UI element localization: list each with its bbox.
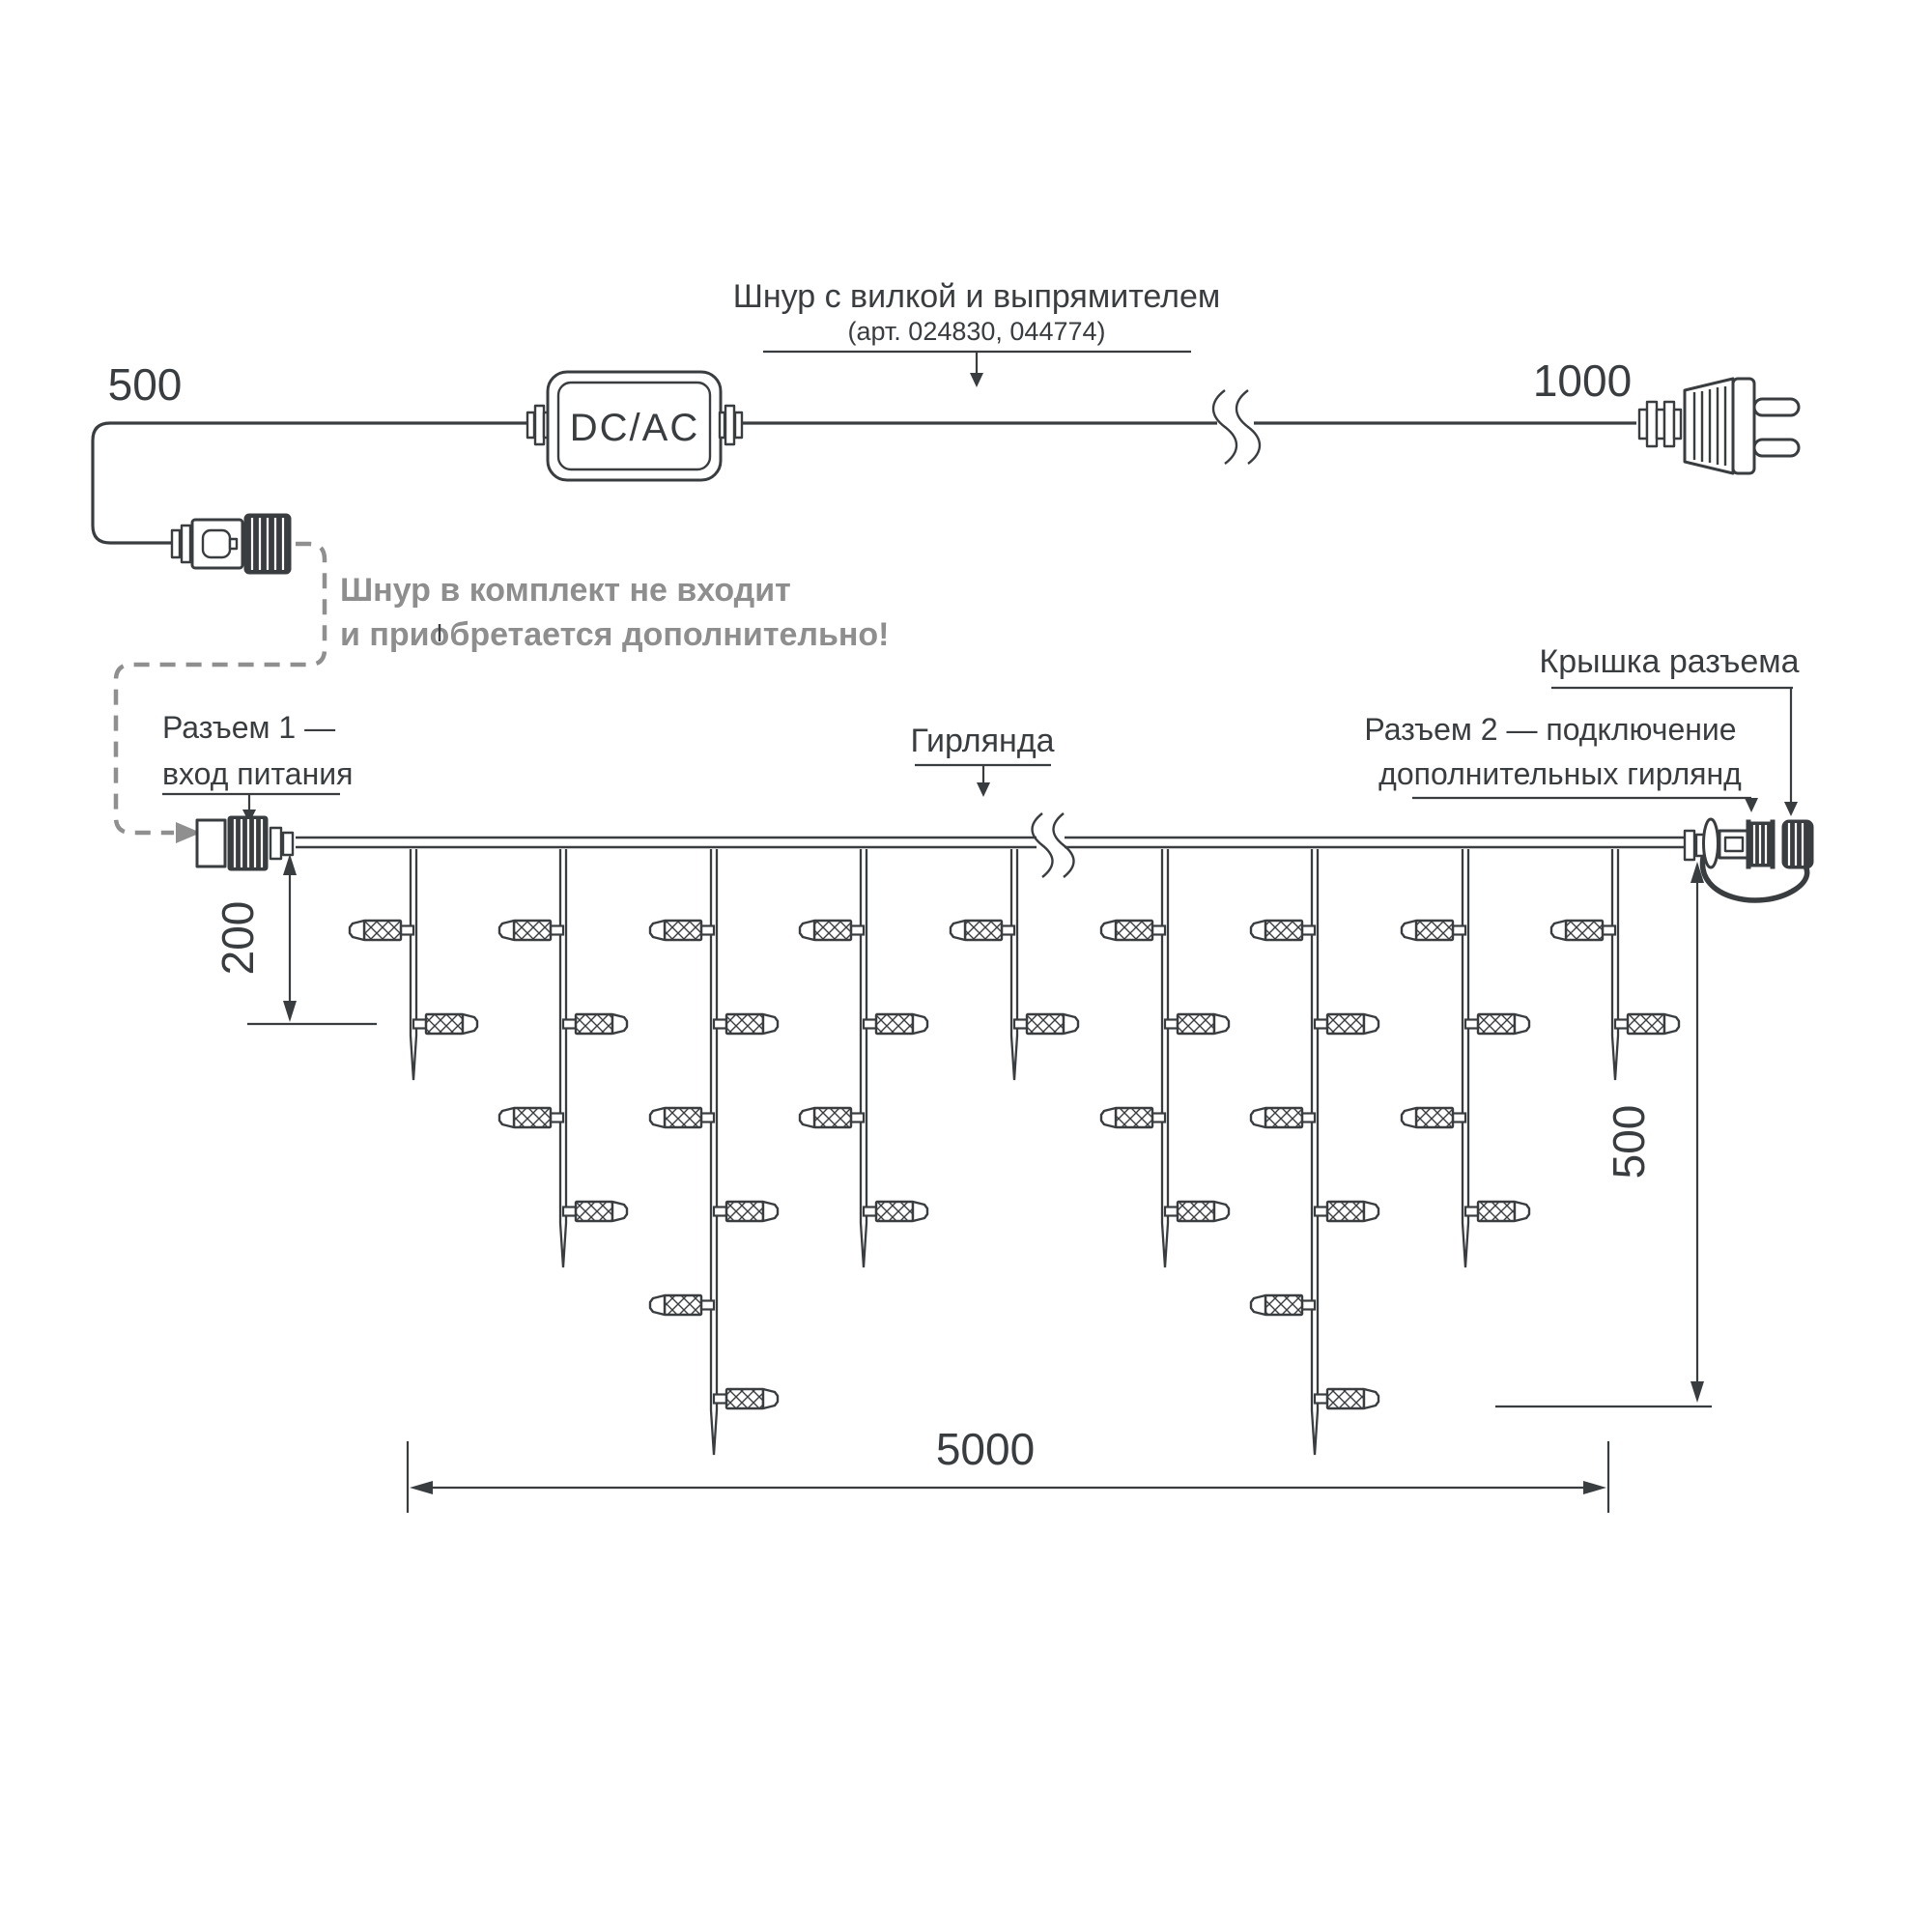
bulb-stem — [701, 926, 714, 935]
bulb-body — [1416, 921, 1453, 940]
bulb-stem — [1165, 1207, 1178, 1216]
bulb-body — [426, 1014, 463, 1034]
bulb-stem — [1302, 1301, 1315, 1310]
bulb-body — [876, 1202, 913, 1221]
connector2-underline — [1412, 798, 1751, 800]
bulb-cap — [1251, 1108, 1265, 1127]
bulb-cap — [650, 1108, 665, 1127]
led-bulb — [413, 1014, 477, 1034]
bulb-stem — [401, 926, 413, 935]
bulb-cap — [1251, 1295, 1265, 1315]
bulb-body — [1265, 921, 1302, 940]
drop-wire — [1612, 849, 1618, 1080]
drop-wire — [1312, 849, 1318, 1455]
bulb-stem — [1302, 1114, 1315, 1122]
dim-500-top: 500 — [108, 359, 183, 410]
bulb-stem — [1315, 1207, 1327, 1216]
bulb-cap — [1101, 921, 1116, 940]
dim-200: 200 — [213, 854, 377, 1024]
bulb-body — [876, 1014, 913, 1034]
note-line1: Шнур в комплект не входит — [340, 572, 791, 609]
bulb-stem — [1152, 926, 1165, 935]
bulb-cap — [1364, 1014, 1378, 1034]
bulb-stem — [851, 926, 864, 935]
led-bulb — [1165, 1202, 1229, 1221]
led-bulb — [1315, 1014, 1378, 1034]
note-line2: и приобретается дополнительно! — [340, 616, 890, 653]
led-bulb — [1251, 1295, 1315, 1315]
bulb-stem — [1453, 1114, 1465, 1122]
dc-ac-converter: DC/AC — [527, 372, 742, 480]
bulb-body — [1178, 1014, 1214, 1034]
bulb-stem — [714, 1020, 726, 1029]
led-bulb — [1014, 1014, 1078, 1034]
cap-label: Крышка разъема — [1539, 643, 1799, 680]
bulb-stem — [1315, 1020, 1327, 1029]
bulb-body — [1116, 1108, 1152, 1127]
bulb-cap — [763, 1014, 778, 1034]
bulb-body — [1478, 1202, 1515, 1221]
connector2-label-line1: Разъем 2 — подключение — [1364, 712, 1736, 747]
led-bulb — [1402, 1108, 1465, 1127]
bulb-stem — [851, 1114, 864, 1122]
cord-label-arrow — [970, 373, 983, 387]
bulb-body — [1566, 921, 1603, 940]
led-bulb — [800, 1108, 864, 1127]
bulb-stem — [701, 1114, 714, 1122]
drop-wire — [411, 849, 416, 1080]
drop-wire — [1463, 849, 1468, 1267]
connector2 — [1685, 819, 1813, 900]
cable-break-symbol — [1213, 390, 1260, 464]
led-bulb — [1251, 921, 1315, 940]
led-bulb — [864, 1014, 927, 1034]
dc-ac-label: DC/AC — [570, 407, 699, 449]
bulb-cap — [612, 1202, 627, 1221]
bulb-cap — [913, 1014, 927, 1034]
dim-500-label: 500 — [1604, 1105, 1654, 1179]
bulb-stem — [1603, 926, 1615, 935]
bulb-stem — [714, 1395, 726, 1404]
led-bulb — [650, 921, 714, 940]
bulb-body — [726, 1202, 763, 1221]
cord-label: Шнур с вилкой и выпрямителем — [733, 278, 1221, 315]
led-bulb — [499, 1108, 563, 1127]
garland-label: Гирлянда — [910, 723, 1054, 759]
bulb-cap — [499, 921, 514, 940]
led-bulb — [563, 1202, 627, 1221]
bulb-cap — [1101, 1108, 1116, 1127]
led-bulb — [1101, 1108, 1165, 1127]
bulb-body — [1628, 1014, 1664, 1034]
bulb-cap — [1664, 1014, 1679, 1034]
led-bulb — [800, 921, 864, 940]
drops-layer — [350, 849, 1679, 1455]
bulb-stem — [1465, 1020, 1478, 1029]
bulb-stem — [1615, 1020, 1628, 1029]
connector2-label-line2: дополнительных гирлянд — [1378, 756, 1742, 791]
cord-sublabel: (арт. 024830, 044774) — [848, 317, 1106, 346]
bulb-body — [965, 921, 1002, 940]
bulb-cap — [1214, 1202, 1229, 1221]
led-bulb — [350, 921, 413, 940]
dim-5000: 5000 — [408, 1424, 1608, 1513]
bulb-body — [514, 1108, 551, 1127]
bulb-cap — [350, 921, 364, 940]
bulb-stem — [1152, 1114, 1165, 1122]
drop-wire — [711, 849, 717, 1455]
connector1-label-line2: вход питания — [162, 756, 353, 791]
garland-label-underline — [915, 765, 1051, 782]
dim-500: 500 — [1495, 862, 1712, 1406]
garland-schematic: 500 DC/AC 1000 — [0, 0, 1932, 1932]
bulb-body — [1178, 1202, 1214, 1221]
bulb-stem — [1002, 926, 1014, 935]
led-bulb — [1315, 1389, 1378, 1408]
power-cable-left — [93, 423, 526, 543]
cord-connector-cap — [244, 514, 291, 574]
led-bulb — [563, 1014, 627, 1034]
connector2-body — [1747, 820, 1775, 868]
bulb-stem — [1165, 1020, 1178, 1029]
bulb-stem — [714, 1207, 726, 1216]
bulb-stem — [1465, 1207, 1478, 1216]
bulb-cap — [612, 1014, 627, 1034]
bulb-cap — [1364, 1389, 1378, 1408]
bulb-stem — [1014, 1020, 1027, 1029]
bulb-cap — [951, 921, 965, 940]
bulb-body — [665, 1108, 701, 1127]
bulb-body — [1265, 1108, 1302, 1127]
bulb-body — [576, 1014, 612, 1034]
bulb-body — [1327, 1014, 1364, 1034]
bulb-body — [1265, 1295, 1302, 1315]
led-bulb — [714, 1202, 778, 1221]
led-bulb — [951, 921, 1014, 940]
bulb-body — [1327, 1389, 1364, 1408]
bulb-stem — [563, 1020, 576, 1029]
led-bulb — [714, 1014, 778, 1034]
connector1 — [197, 816, 293, 870]
garland-break-symbol — [1033, 813, 1074, 877]
bulb-stem — [1315, 1395, 1327, 1404]
led-bulb — [1551, 921, 1615, 940]
cord-connector — [172, 514, 291, 574]
connector1-label-line1: Разъем 1 — — [162, 710, 335, 745]
connector1-underline — [162, 794, 340, 810]
bulb-stem — [413, 1020, 426, 1029]
bulb-body — [514, 921, 551, 940]
bulb-cap — [1064, 1014, 1078, 1034]
bulb-cap — [800, 921, 814, 940]
bulb-stem — [551, 926, 563, 935]
bulb-body — [1327, 1202, 1364, 1221]
bulb-stem — [1453, 926, 1465, 935]
bulb-cap — [763, 1202, 778, 1221]
led-bulb — [864, 1202, 927, 1221]
cord-label-underline — [763, 352, 1191, 373]
bulb-cap — [1402, 1108, 1416, 1127]
drop-wire — [1162, 849, 1168, 1267]
dim-1000: 1000 — [1533, 355, 1632, 406]
bulb-cap — [1551, 921, 1566, 940]
connector2-arrow — [1745, 798, 1758, 812]
bulb-cap — [650, 1295, 665, 1315]
bulb-body — [814, 921, 851, 940]
drop-wire — [861, 849, 867, 1267]
bulb-cap — [1515, 1014, 1529, 1034]
drop-wire — [560, 849, 566, 1267]
drop-wire — [1011, 849, 1017, 1080]
led-bulb — [1465, 1014, 1529, 1034]
garland-wire — [296, 838, 1687, 847]
led-bulb — [714, 1389, 778, 1408]
connector2-cap — [1782, 820, 1813, 868]
dim-5000-label: 5000 — [936, 1424, 1035, 1474]
bulb-cap — [913, 1202, 927, 1221]
diagram-canvas: 500 DC/AC 1000 — [0, 0, 1932, 1932]
garland-label-arrow — [977, 782, 990, 797]
bulb-cap — [650, 921, 665, 940]
dim-200-label: 200 — [213, 901, 263, 976]
bulb-cap — [1251, 921, 1265, 940]
bulb-body — [576, 1202, 612, 1221]
bulb-body — [1416, 1108, 1453, 1127]
led-bulb — [499, 921, 563, 940]
mains-plug — [1639, 379, 1799, 473]
bulb-cap — [463, 1014, 477, 1034]
bulb-body — [726, 1389, 763, 1408]
bulb-stem — [1302, 926, 1315, 935]
cap-label-arrow — [1784, 802, 1798, 816]
bulb-stem — [864, 1020, 876, 1029]
bulb-body — [1116, 921, 1152, 940]
led-bulb — [650, 1108, 714, 1127]
led-bulb — [1615, 1014, 1679, 1034]
bulb-body — [726, 1014, 763, 1034]
led-bulb — [1101, 921, 1165, 940]
led-bulb — [650, 1295, 714, 1315]
led-bulb — [1315, 1202, 1378, 1221]
bulb-stem — [563, 1207, 576, 1216]
bulb-stem — [864, 1207, 876, 1216]
led-bulb — [1251, 1108, 1315, 1127]
led-bulb — [1165, 1014, 1229, 1034]
bulb-cap — [1364, 1202, 1378, 1221]
bulb-body — [665, 1295, 701, 1315]
bulb-cap — [1214, 1014, 1229, 1034]
bulb-cap — [763, 1389, 778, 1408]
led-bulb — [1402, 921, 1465, 940]
led-bulb — [1465, 1202, 1529, 1221]
bulb-stem — [701, 1301, 714, 1310]
bulb-body — [814, 1108, 851, 1127]
bulb-cap — [1515, 1202, 1529, 1221]
bulb-cap — [1402, 921, 1416, 940]
bulb-body — [364, 921, 401, 940]
bulb-body — [665, 921, 701, 940]
bulb-body — [1478, 1014, 1515, 1034]
bulb-stem — [551, 1114, 563, 1122]
bulb-cap — [800, 1108, 814, 1127]
bulb-body — [1027, 1014, 1064, 1034]
bulb-cap — [499, 1108, 514, 1127]
